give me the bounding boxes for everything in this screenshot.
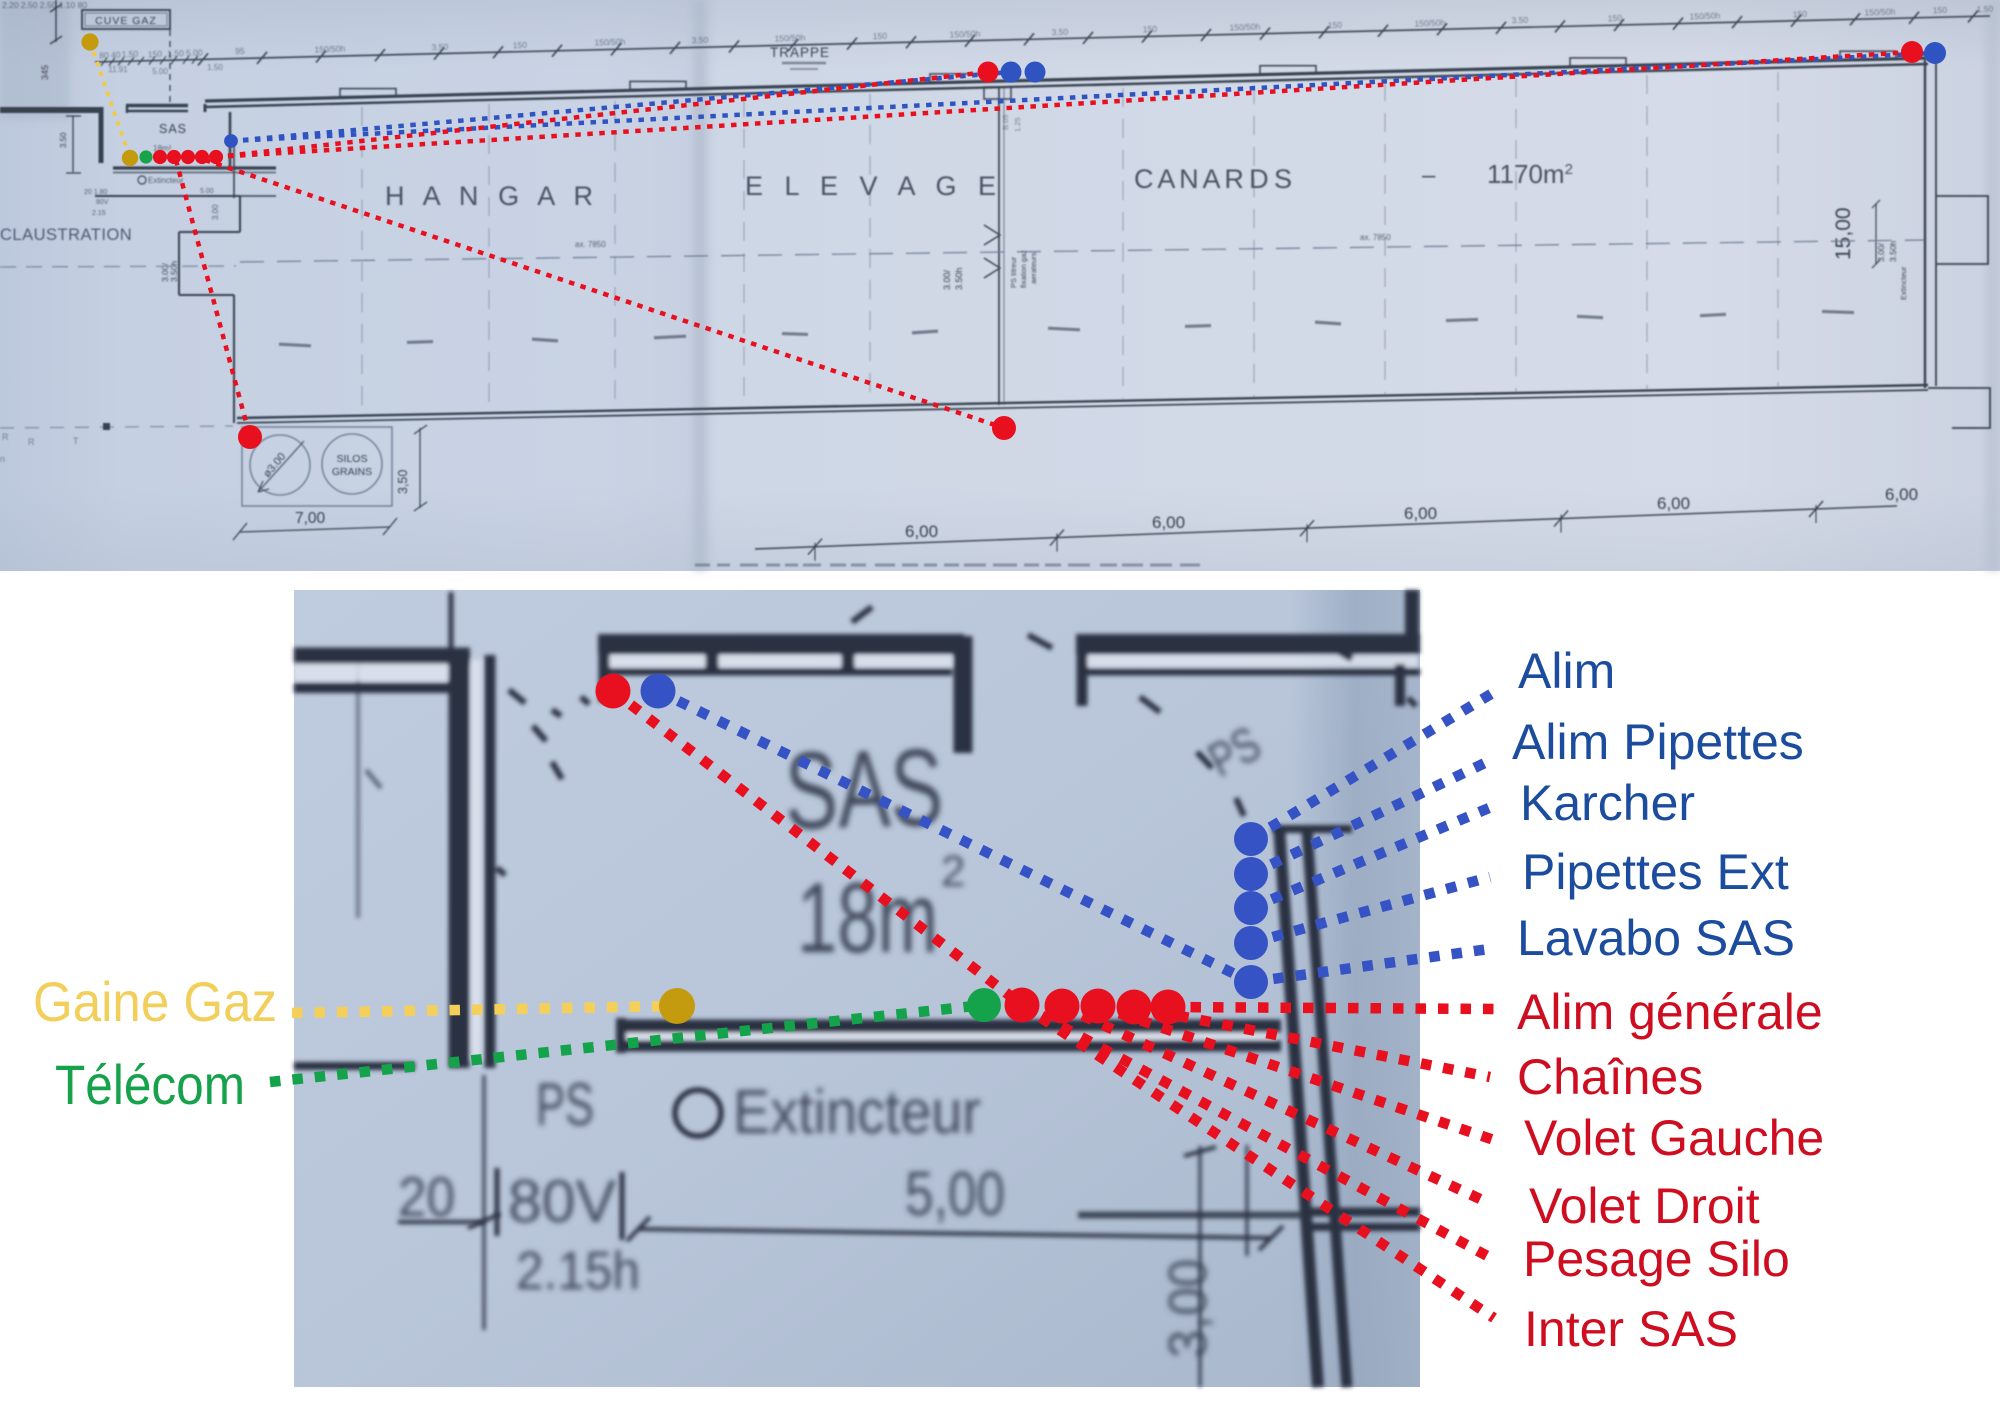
svg-text:3.50: 3.50 <box>431 42 448 53</box>
svg-text:3.50: 3.50 <box>691 35 708 46</box>
svg-text:Alim: Alim <box>1518 643 1615 699</box>
svg-text:2: 2 <box>941 847 965 896</box>
svg-text:150/50h: 150/50h <box>594 36 625 47</box>
svg-text:Pesage Silo: Pesage Silo <box>1523 1231 1790 1287</box>
svg-text:ax. 7850: ax. 7850 <box>575 240 606 249</box>
svg-text:3.50h: 3.50h <box>954 267 964 290</box>
svg-text:6,00: 6,00 <box>1657 494 1690 513</box>
svg-text:T: T <box>73 436 79 446</box>
svg-text:GRAINS: GRAINS <box>332 466 372 478</box>
svg-text:Gaine Gaz: Gaine Gaz <box>33 970 277 1033</box>
svg-text:–: – <box>1422 162 1436 189</box>
svg-text:SAS: SAS <box>159 122 187 136</box>
svg-text:5,00: 5,00 <box>905 1160 1005 1229</box>
svg-text:Lavabo SAS: Lavabo SAS <box>1517 910 1795 966</box>
svg-text:3.50: 3.50 <box>1051 27 1068 38</box>
svg-text:3.50: 3.50 <box>59 132 68 148</box>
svg-text:15,00: 15,00 <box>1832 207 1855 260</box>
svg-text:2.15h: 2.15h <box>516 1241 640 1301</box>
svg-text:6,00: 6,00 <box>905 522 938 541</box>
svg-text:150: 150 <box>873 31 888 41</box>
svg-text:1.50: 1.50 <box>1976 4 1993 15</box>
svg-text:20 1.80: 20 1.80 <box>84 189 107 196</box>
svg-text:3.00/: 3.00/ <box>942 269 952 290</box>
svg-text:SILOS: SILOS <box>337 453 368 465</box>
svg-text:150/50h: 150/50h <box>774 32 805 43</box>
svg-text:3.00: 3.00 <box>211 204 220 220</box>
svg-text:5.00: 5.00 <box>200 188 214 195</box>
svg-text:150/50h: 150/50h <box>1414 17 1445 28</box>
svg-text:R: R <box>2 432 9 442</box>
svg-text:Inter SAS: Inter SAS <box>1524 1301 1738 1357</box>
svg-text:Volet Droit: Volet Droit <box>1529 1178 1760 1234</box>
svg-text:Karcher: Karcher <box>1520 775 1695 831</box>
svg-text:1.50: 1.50 <box>121 49 138 60</box>
svg-text:Alim générale: Alim générale <box>1517 984 1823 1040</box>
svg-text:CLAUSTRATION: CLAUSTRATION <box>0 226 132 244</box>
svg-text:150: 150 <box>1608 13 1623 23</box>
svg-text:6,00: 6,00 <box>1885 485 1918 504</box>
svg-text:C A N A R D S: C A N A R D S <box>1134 164 1294 194</box>
svg-text:150/50h: 150/50h <box>314 43 345 54</box>
svg-text:Extincteur: Extincteur <box>733 1078 981 1147</box>
svg-text:150/50h: 150/50h <box>1689 10 1720 21</box>
svg-text:3.50: 3.50 <box>1511 15 1528 26</box>
svg-text:n: n <box>0 454 5 464</box>
svg-text:PS titreur: PS titreur <box>1009 256 1018 288</box>
svg-text:2.20 2.50 2.50 1.10 80: 2.20 2.50 2.50 1.10 80 <box>2 0 87 10</box>
svg-text:3,00: 3,00 <box>1158 1259 1218 1358</box>
svg-text:7,00: 7,00 <box>295 510 326 527</box>
svg-text:1.50 5.00: 1.50 5.00 <box>167 47 203 58</box>
svg-text:CUVE GAZ: CUVE GAZ <box>95 15 157 27</box>
svg-text:Télécom: Télécom <box>55 1053 245 1116</box>
svg-text:150: 150 <box>148 49 163 59</box>
svg-text:18m: 18m <box>797 862 938 973</box>
svg-text:6,00: 6,00 <box>1152 513 1185 532</box>
svg-text:1.25: 1.25 <box>1013 117 1022 132</box>
svg-text:aerateurs: aerateurs <box>1029 252 1038 284</box>
svg-text:1170m2: 1170m2 <box>1487 159 1573 189</box>
svg-text:TRAPPE: TRAPPE <box>770 45 830 60</box>
svg-text:80V: 80V <box>96 199 109 206</box>
svg-text:150/50h: 150/50h <box>949 28 980 39</box>
svg-text:345: 345 <box>40 65 50 80</box>
svg-text:80V: 80V <box>508 1168 616 1235</box>
svg-text:150: 150 <box>1143 24 1158 34</box>
svg-text:150: 150 <box>1793 9 1808 19</box>
svg-text:Alim Pipettes: Alim Pipettes <box>1512 714 1804 770</box>
svg-text:150: 150 <box>513 40 528 50</box>
svg-text:R: R <box>28 437 35 447</box>
svg-text:Chaînes: Chaînes <box>1517 1049 1703 1105</box>
svg-text:150/50h: 150/50h <box>1864 6 1895 17</box>
svg-text:3.50h: 3.50h <box>1888 240 1898 262</box>
svg-text:PS: PS <box>536 1071 594 1138</box>
svg-text:80 40: 80 40 <box>99 50 121 61</box>
svg-text:150/50h: 150/50h <box>1229 21 1260 32</box>
svg-text:1.50: 1.50 <box>207 63 223 72</box>
svg-text:fixation gaz: fixation gaz <box>1019 250 1028 288</box>
svg-text:3.00/: 3.00/ <box>1876 242 1886 262</box>
svg-text:5.00: 5.00 <box>152 67 168 76</box>
svg-text:95: 95 <box>235 46 245 56</box>
svg-text:Volet Gauche: Volet Gauche <box>1524 1110 1824 1166</box>
svg-text:3.50h: 3.50h <box>169 260 179 282</box>
svg-text:B.05: B.05 <box>1001 115 1010 130</box>
svg-text:11.91: 11.91 <box>108 65 128 74</box>
svg-text:6,00: 6,00 <box>1404 504 1437 523</box>
svg-text:Pipettes Ext: Pipettes Ext <box>1522 844 1789 900</box>
svg-text:ax. 7850: ax. 7850 <box>1360 233 1391 242</box>
svg-text:3,50: 3,50 <box>396 470 410 494</box>
svg-text:20: 20 <box>398 1165 455 1228</box>
svg-text:2.15: 2.15 <box>92 210 106 217</box>
svg-text:150: 150 <box>1933 5 1948 15</box>
svg-text:150: 150 <box>1328 20 1343 30</box>
svg-text:Extincteur: Extincteur <box>1899 266 1908 300</box>
svg-text:H A N G A R: H A N G A R <box>385 181 597 211</box>
